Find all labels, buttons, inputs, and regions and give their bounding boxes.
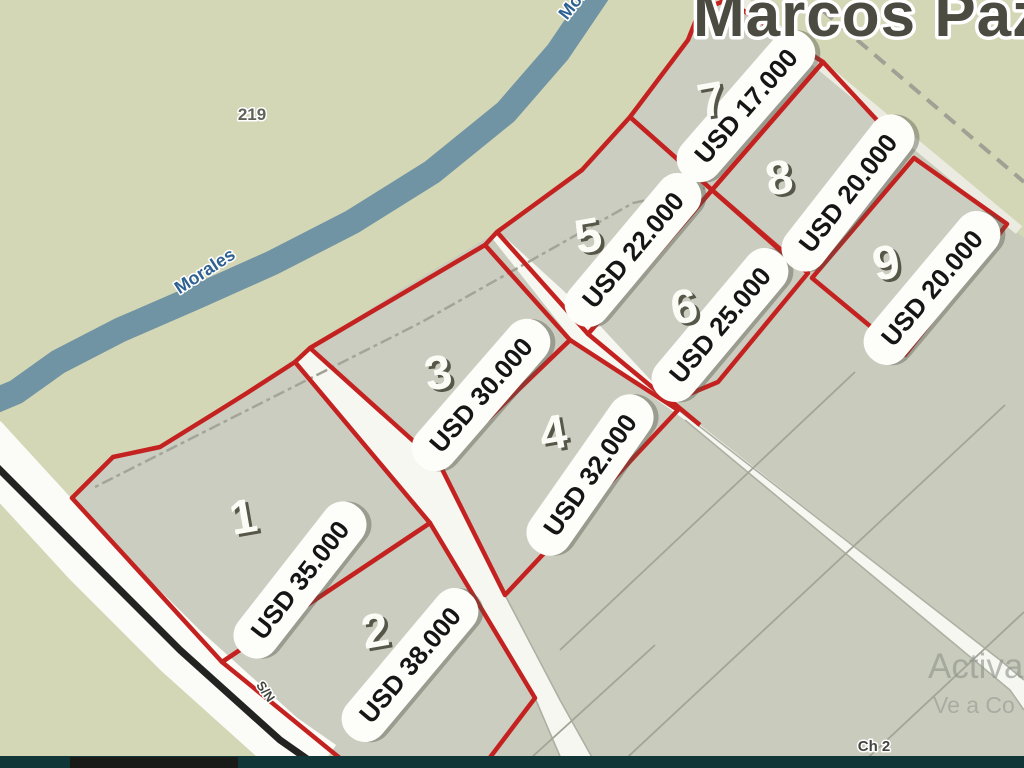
label-route-219-text: 219 xyxy=(238,105,266,124)
map-title: Marcos Paz xyxy=(693,0,1024,50)
label-ch2-text: Ch 2 xyxy=(858,738,891,755)
bottom-bar xyxy=(70,757,238,768)
parcel-map-svg: USD 35.000USD 38.000USD 30.000USD 32.000… xyxy=(0,0,1024,768)
activation-watermark-line2: Ve a Co xyxy=(933,692,1015,718)
map-canvas: USD 35.000USD 38.000USD 30.000USD 32.000… xyxy=(0,0,1024,768)
label-ch2: Ch 2 xyxy=(858,738,891,755)
label-route-219: 219 xyxy=(238,105,266,124)
activation-watermark-line1: Activa xyxy=(928,647,1024,686)
